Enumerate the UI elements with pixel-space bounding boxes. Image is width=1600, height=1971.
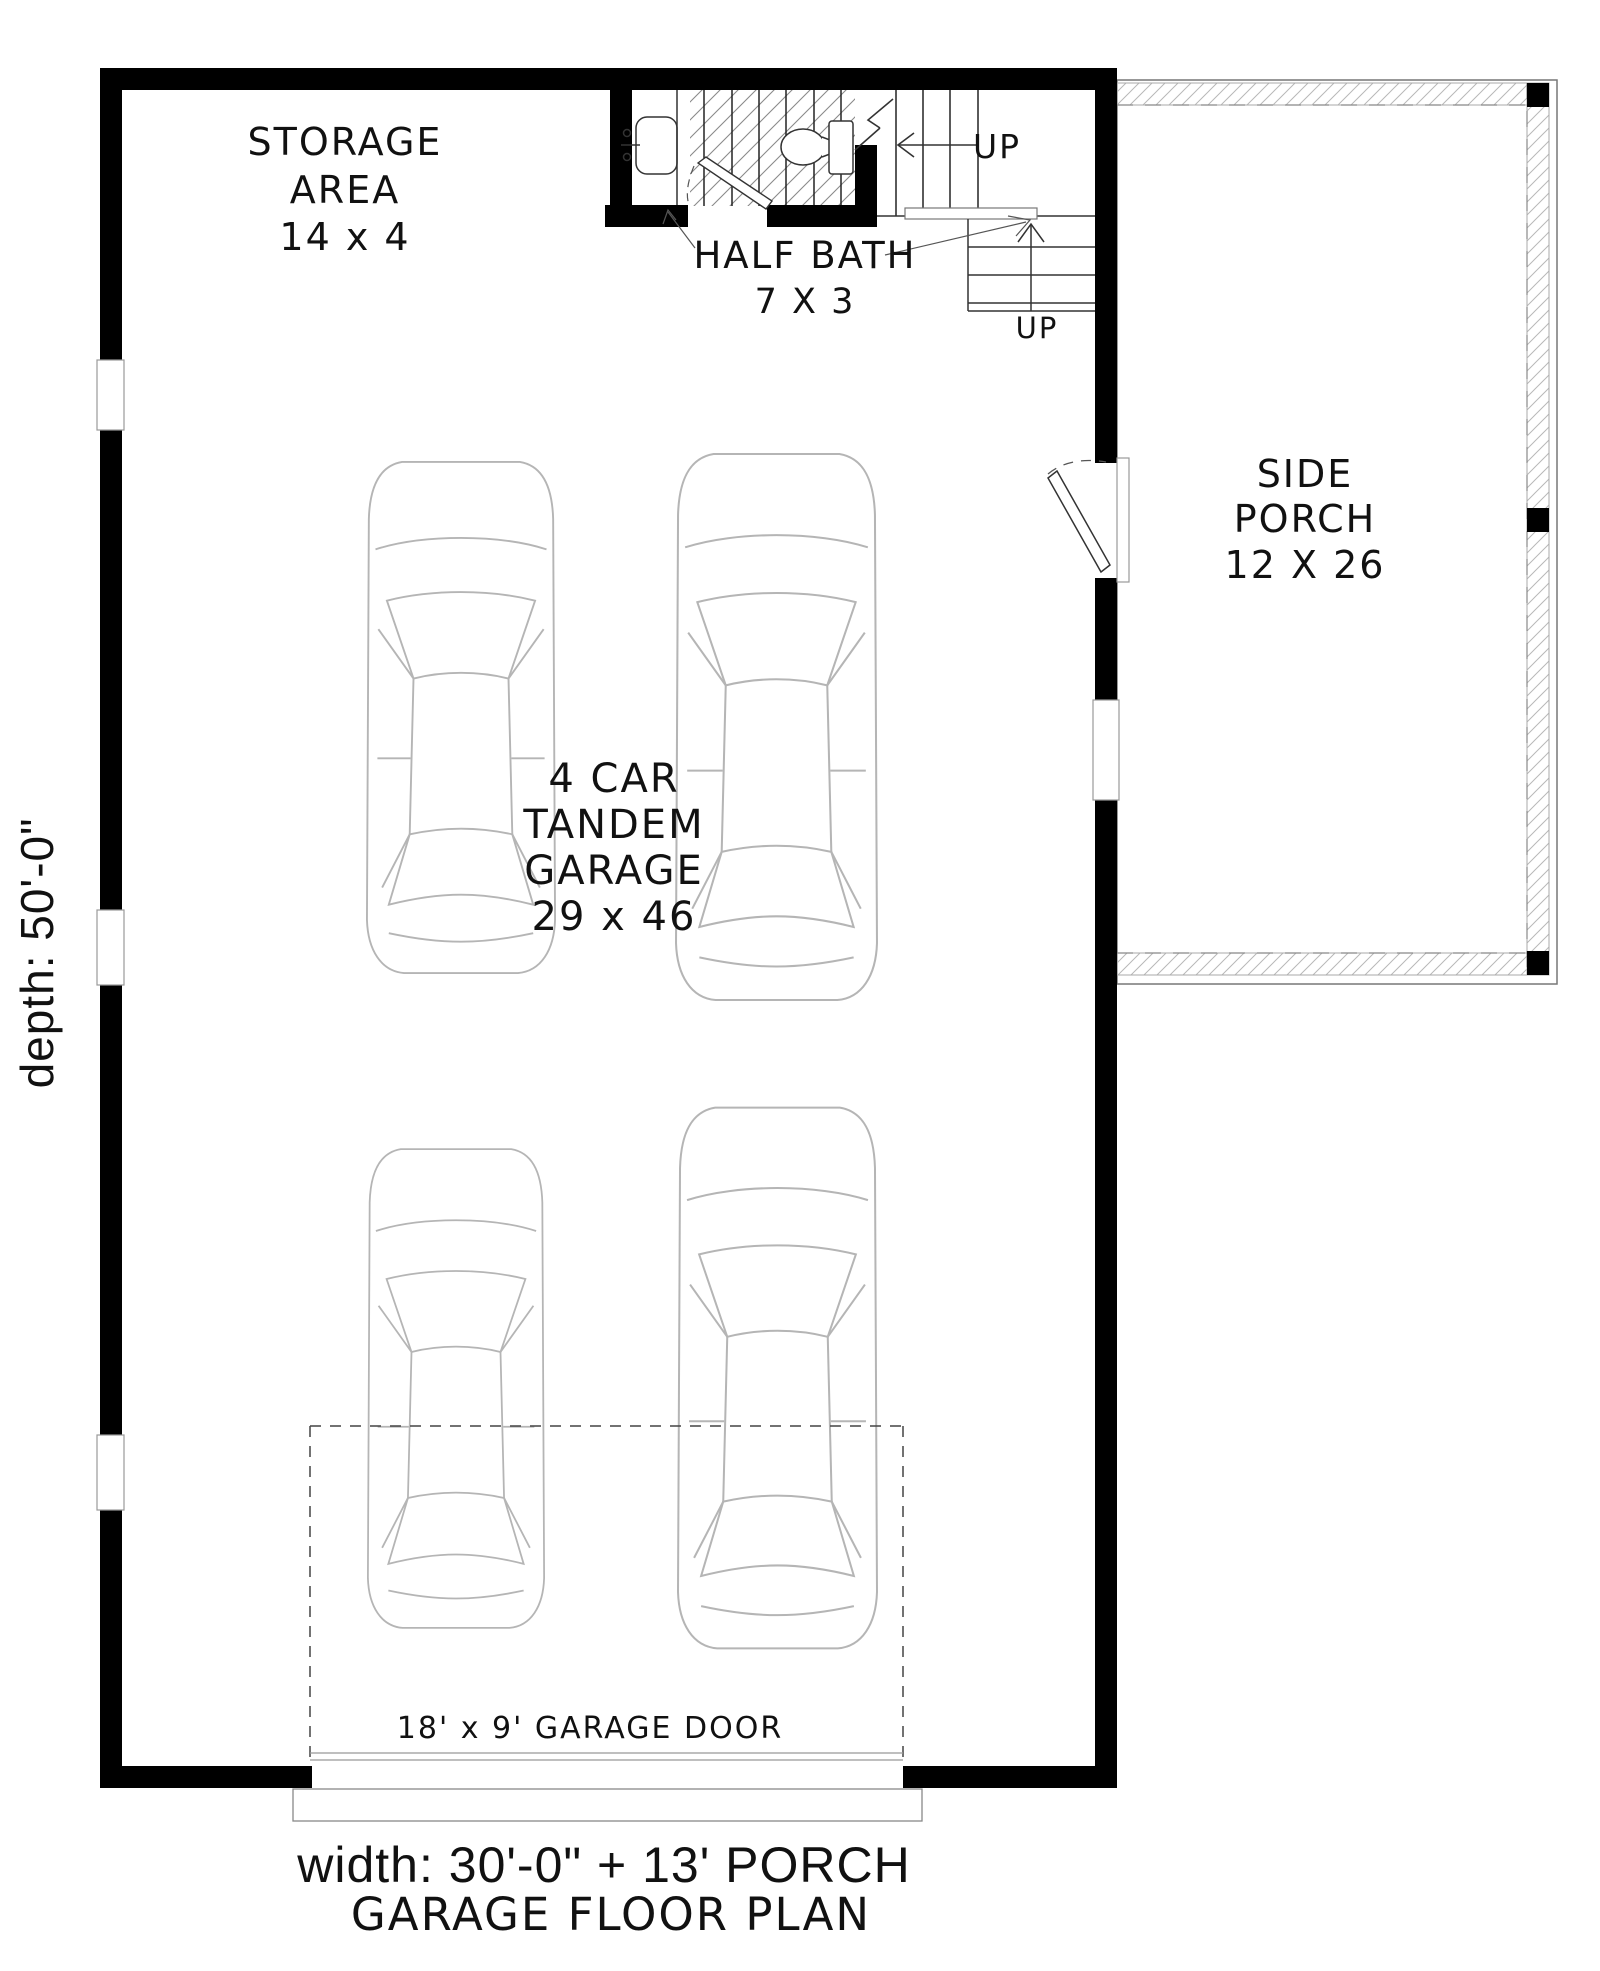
- floor-plan-drawing: STORAGE AREA 14 x 4 HALF BATH 7 X 3 UP U…: [0, 0, 1600, 1971]
- width-dimension-label: width: 30'-0" + 13' PORCH: [296, 1837, 910, 1893]
- garage-size-label: 29 x 46: [532, 894, 697, 940]
- porch-post: [1527, 83, 1549, 107]
- door-frame: [1117, 458, 1129, 582]
- porch-post: [1527, 508, 1549, 532]
- car-icon: [368, 1149, 544, 1628]
- window-left-2: [97, 910, 124, 985]
- cars: [367, 454, 877, 1648]
- window-right-1: [1093, 700, 1119, 800]
- stair-lower-flight: [968, 219, 1095, 311]
- wall-bottom-left: [100, 1766, 312, 1788]
- up-label-2: UP: [1016, 311, 1059, 345]
- garage-label-line2: TANDEM: [522, 802, 704, 848]
- porch-post: [1527, 951, 1549, 975]
- depth-dimension-label: depth: 50'-0": [11, 818, 63, 1089]
- side-porch-label-line2: PORCH: [1234, 497, 1376, 541]
- window-left-1: [97, 360, 124, 430]
- car-icon: [367, 462, 555, 973]
- porch-bottom-band: [1117, 953, 1549, 975]
- car-icon: [676, 454, 877, 1000]
- plan-title: GARAGE FLOOR PLAN: [351, 1888, 871, 1941]
- half-bath-and-stairs: [605, 90, 1095, 311]
- porch-top-band: [1117, 83, 1549, 105]
- storage-label-line1: STORAGE: [248, 120, 443, 164]
- garage-door-label: 18' x 9' GARAGE DOOR: [397, 1711, 783, 1746]
- labels: STORAGE AREA 14 x 4 HALF BATH 7 X 3 UP U…: [11, 120, 1385, 1941]
- side-porch-size-label: 12 X 26: [1225, 543, 1386, 587]
- wall-right: [1095, 68, 1117, 1788]
- wall-bottom-right: [903, 1766, 1117, 1788]
- half-bath-size-label: 7 X 3: [755, 282, 856, 322]
- storage-label-line2: AREA: [290, 168, 400, 212]
- garage-label-line1: 4 CAR: [548, 756, 679, 802]
- half-bath-label: HALF BATH: [693, 234, 916, 277]
- storage-size-label: 14 x 4: [279, 215, 410, 259]
- side-porch-label-line1: SIDE: [1257, 452, 1354, 496]
- garage-label-line3: GARAGE: [524, 848, 703, 894]
- car-icon: [678, 1108, 877, 1649]
- wall-top: [100, 68, 1117, 90]
- garage-floor-plan-page: STORAGE AREA 14 x 4 HALF BATH 7 X 3 UP U…: [0, 0, 1600, 1971]
- garage-door-sill: [293, 1789, 922, 1821]
- up-label-1: UP: [973, 127, 1021, 166]
- window-left-3: [97, 1435, 124, 1510]
- porch-door: [1048, 458, 1129, 582]
